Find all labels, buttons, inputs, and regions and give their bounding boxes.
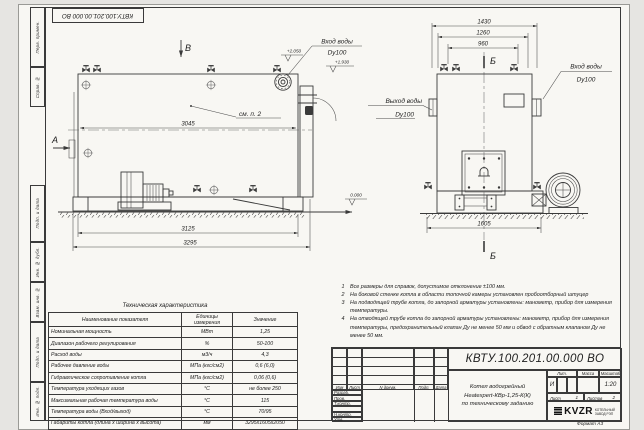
valve-icon xyxy=(510,65,518,72)
dim-frame-length: 3125 xyxy=(181,227,195,233)
kvzr-logo-icon xyxy=(554,407,562,416)
see-note-ref: см. п. 2 xyxy=(239,111,262,118)
water-outlet-label: Выход воды xyxy=(385,97,422,105)
spec-name: Диапазон рабочего регулирования xyxy=(49,338,182,349)
valve-icon xyxy=(273,66,281,73)
product-description: Котел водогрейный Heatexpert-КВр-1,25-К(… xyxy=(448,370,547,422)
mass-label: Масса xyxy=(577,370,599,377)
lit-label: Лит. xyxy=(547,370,577,377)
product-line2: Heatexpert-КВр-1,25-К(К) xyxy=(464,392,531,401)
table-row: Максимальная рабочая температура воды°С1… xyxy=(49,395,298,406)
spec-unit: % xyxy=(182,338,233,349)
water-inlet-label: Вход воды xyxy=(321,38,353,46)
drawing-notes: 1 Все размеры для справок, допустимое от… xyxy=(336,283,619,340)
spec-value: не более 250 xyxy=(233,383,298,394)
section-label-b-top: Б xyxy=(490,56,496,66)
note-item: 4 На отводящей трубе котла до запорной а… xyxy=(336,315,619,339)
kvzr-logo-subtext: КОТЕЛЬНЫЙ ЗАВОД РЭП xyxy=(595,408,615,416)
product-line1: Котел водогрейный xyxy=(470,383,525,392)
lifting-lug-icon xyxy=(206,80,216,90)
elevation-inlet: +2.050 xyxy=(287,49,302,54)
spec-header-value: Значение xyxy=(233,313,298,327)
spec-name: Габариты котла (длина х ширина х высота) xyxy=(49,418,182,429)
note-item: 1 Все размеры для справок, допустимое от… xyxy=(336,283,619,291)
drain-valve-icon xyxy=(424,183,432,190)
spec-header-name: Наименование показателя xyxy=(49,313,182,327)
elevation-outlet: +1.930 xyxy=(335,60,350,65)
spec-value: 0,6 (6,0) xyxy=(233,361,298,372)
table-row: Расход водым3/ч4,3 xyxy=(49,349,298,360)
doc-number-cell: КВТУ.100.201.00.000 ВО xyxy=(448,348,622,370)
scale-label: Масштаб xyxy=(599,370,622,377)
note-text: Все размеры для справок, допустимое откл… xyxy=(350,283,619,291)
water-inlet-dn-front: Dy100 xyxy=(577,77,596,84)
spec-unit: °С xyxy=(182,383,233,394)
rev-header-date: Дата xyxy=(434,384,448,390)
rev-header-doc: N докум. xyxy=(362,384,414,390)
dim-overall-length: 3295 xyxy=(183,241,197,247)
rev-header-sign: Подп. xyxy=(414,384,434,390)
logo-sub-line1: КОТЕЛЬНЫЙ xyxy=(595,408,615,412)
water-inlet-dn: Dy100 xyxy=(328,50,347,57)
scale-value: 1:20 xyxy=(599,377,622,393)
note-text: На подводящей трубе котла, до запорной а… xyxy=(350,299,619,315)
valve-icon xyxy=(440,65,448,72)
furnace-door xyxy=(462,151,505,195)
lifting-lug-icon xyxy=(83,148,93,158)
spec-unit: °С xyxy=(182,406,233,417)
drain-valve-icon xyxy=(193,186,201,193)
format-note: Формат А3 xyxy=(545,422,635,427)
note-number: 2 xyxy=(336,291,350,299)
table-row: Диапазон рабочего регулирования%50-100 xyxy=(49,338,298,349)
spec-header-units: Единицы измерения xyxy=(182,313,233,327)
sheet-value: 1 xyxy=(575,395,578,400)
sheets-value: 2 xyxy=(612,395,615,400)
spec-name: Расход воды xyxy=(49,349,182,360)
mass-value xyxy=(577,377,599,393)
company-logo: KVZR КОТЕЛЬНЫЙ ЗАВОД РЭП xyxy=(547,401,622,422)
sheets-label: Листов xyxy=(587,396,602,401)
spec-value: 115 xyxy=(233,395,298,406)
drain-valve-icon xyxy=(249,186,257,193)
dim-front-overall: 1430 xyxy=(477,20,491,26)
sheet-cell: Лист 1 xyxy=(547,393,584,401)
drawing-sheet-page: Перв. примен. Справ. № Подп. и дата Инв.… xyxy=(0,0,644,430)
inlet-flange xyxy=(275,74,291,90)
valve-icon xyxy=(452,65,460,72)
spec-table: Наименование показателя Единицы измерени… xyxy=(48,312,298,430)
sheet-label: Лист xyxy=(550,396,561,401)
spec-value: 3295х1605х2050 xyxy=(233,418,298,429)
section-label-b-bottom: Б xyxy=(490,251,496,261)
view-label-a: А xyxy=(51,135,58,145)
table-row: Температура воды (Вход/выход)°С70/95 xyxy=(49,406,298,417)
spec-name: Температура уходящих газов xyxy=(49,383,182,394)
spec-unit: °С xyxy=(182,395,233,406)
spec-name: Максимальная рабочая температура воды xyxy=(49,395,182,406)
role-utv: Утв. xyxy=(332,417,362,422)
table-row: Габариты котла (длина х ширина х высота)… xyxy=(49,418,298,429)
logo-sub-line2: ЗАВОД РЭП xyxy=(595,412,615,416)
lifting-lug-icon xyxy=(209,185,219,195)
table-row: Температура уходящих газов°Сне более 250 xyxy=(49,383,298,394)
spec-name: Рабочее давление воды xyxy=(49,361,182,372)
view-label-b: В xyxy=(185,43,191,53)
kvzr-logo-text: KVZR xyxy=(564,406,593,417)
table-row: Рабочее давление водыМПа (кгс/см2)0,6 (6… xyxy=(49,361,298,372)
spec-unit: МВт xyxy=(182,327,233,338)
water-inlet-label-front: Вход воды xyxy=(570,63,602,71)
note-item: 2 На боковой стенке котла в области топо… xyxy=(336,291,619,299)
dim-base-width: 1605 xyxy=(477,222,491,228)
burner-assembly xyxy=(118,172,173,210)
boiler-base xyxy=(437,191,546,213)
note-text: На боковой стенке котла в области топочн… xyxy=(350,291,619,299)
table-row: Номинальная мощностьМВт1,25 xyxy=(49,327,298,338)
spec-unit: МПа (кгс/см2) xyxy=(182,361,233,372)
elevation-zero: 0.000 xyxy=(350,193,362,198)
spec-value: 4,3 xyxy=(233,349,298,360)
side-dimensions: 3045 3125 3295 xyxy=(73,122,310,252)
title-block: Изм Лист N докум. Подп. Дата Разраб. Про… xyxy=(331,347,621,421)
dim-front-valves: 960 xyxy=(478,42,489,48)
spec-value: 50-100 xyxy=(233,338,298,349)
note-number: 4 xyxy=(336,315,350,339)
spec-value: 70/95 xyxy=(233,406,298,417)
titleblock-left-grid: Изм Лист N докум. Подп. Дата Разраб. Про… xyxy=(332,348,448,422)
side-view: 3045 3125 3295 В А см. п. 2 Вход воды xyxy=(51,38,367,252)
spec-name: Температура воды (Вход/выход) xyxy=(49,406,182,417)
lit-value: И xyxy=(547,377,557,393)
note-item: 3 На подводящей трубе котла, до запорной… xyxy=(336,299,619,315)
product-line3: по техническому заданию xyxy=(462,400,534,409)
note-number: 3 xyxy=(336,299,350,315)
water-outlet-dn: Dy100 xyxy=(395,112,414,119)
note-text: На отводящей трубе котла до запорной арм… xyxy=(350,315,619,339)
sheets-cell: Листов 2 xyxy=(584,393,622,401)
spec-table-title: Техническая характеристика xyxy=(48,303,282,309)
spec-header-row: Наименование показателя Единицы измерени… xyxy=(49,313,298,327)
note-number: 1 xyxy=(336,283,350,291)
spec-value: 1,25 xyxy=(233,327,298,338)
valve-icon xyxy=(93,66,101,73)
spec-value: 0,06 (0,6) xyxy=(233,372,298,383)
spec-unit: м3/ч xyxy=(182,349,233,360)
spec-name: Номинальная мощность xyxy=(49,327,182,338)
spec-unit: мм xyxy=(182,418,233,429)
fan xyxy=(546,173,580,214)
spec-unit: МПа (кгс/см2) xyxy=(182,372,233,383)
drain-valve-icon xyxy=(533,183,541,190)
valve-icon xyxy=(82,66,90,73)
valve-icon xyxy=(207,66,215,73)
table-row: Гидравлическое сопротивление котлаМПа (к… xyxy=(49,372,298,383)
front-view: 1430 1260 960 Б Б xyxy=(368,20,612,262)
lifting-lug-icon xyxy=(81,80,91,90)
spec-name: Гидравлическое сопротивление котла xyxy=(49,372,182,383)
dim-shell-length: 3045 xyxy=(181,122,195,128)
dim-front-flanges: 1260 xyxy=(476,31,490,37)
